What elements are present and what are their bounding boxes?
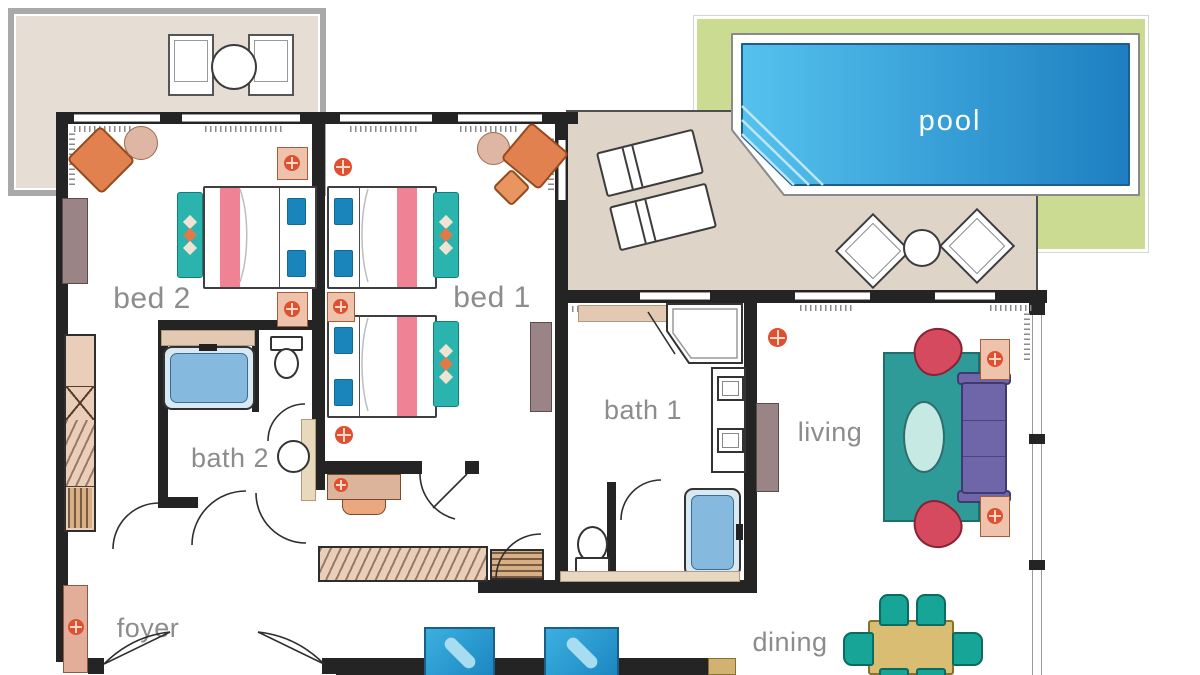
door-leaf bbox=[433, 474, 467, 508]
shower-door-line bbox=[648, 312, 675, 354]
duvet-fold bbox=[362, 318, 368, 411]
door-arc bbox=[256, 493, 306, 543]
floor-plan: pool bbox=[0, 0, 1200, 675]
decor-overlay bbox=[0, 0, 1200, 675]
door-leaf bbox=[104, 632, 170, 664]
door-arc bbox=[268, 404, 305, 441]
door-leaf bbox=[258, 632, 324, 664]
door-arc bbox=[420, 474, 455, 519]
duvet-fold bbox=[240, 189, 247, 282]
door-arc bbox=[621, 480, 661, 520]
door-arc bbox=[113, 503, 159, 549]
door-arc bbox=[496, 534, 541, 579]
door-arc bbox=[192, 491, 246, 545]
duvet-fold bbox=[362, 189, 368, 282]
